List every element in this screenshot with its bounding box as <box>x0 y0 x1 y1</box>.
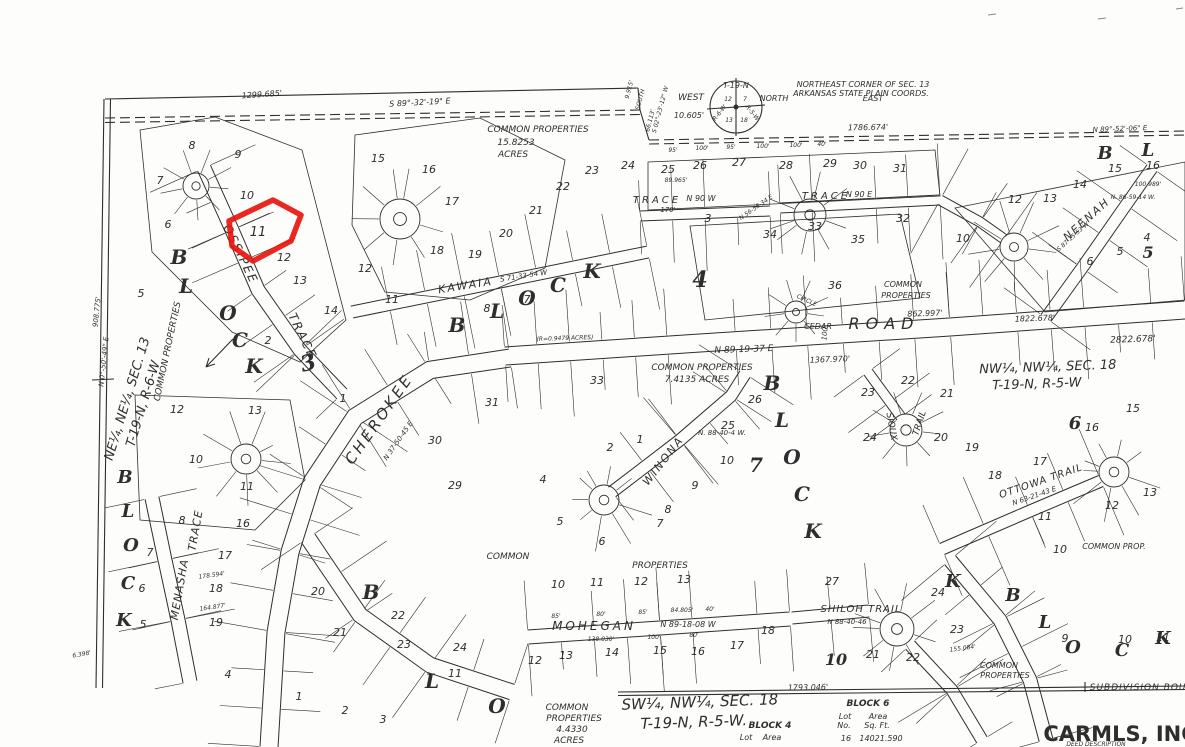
map-label: 17 <box>218 549 232 562</box>
corner-note-line2: ARKANSAS STATE PLAIN COORDS. <box>792 89 929 98</box>
map-label: 5 <box>1117 245 1124 258</box>
map-label: 6 <box>1087 255 1094 268</box>
map-label: CEDAR <box>804 322 832 331</box>
map-label: ACRES <box>497 150 528 160</box>
corner-note-line1: NORTHEAST CORNER OF SEC. 13 <box>797 80 930 89</box>
map-label: 7 <box>157 174 164 187</box>
street-mohegan: MOHEGAN <box>552 619 636 633</box>
map-label: 1 <box>296 690 303 703</box>
map-label: 13 <box>559 649 573 662</box>
map-label: 27 <box>732 156 746 169</box>
map-label: 15.8253 <box>497 138 534 148</box>
map-label: 13 <box>677 573 691 586</box>
map-label: K <box>582 259 602 283</box>
map-label: L <box>121 501 135 522</box>
map-label: 6 <box>139 582 146 595</box>
map-label: O <box>518 286 536 310</box>
map-label: 10 <box>720 454 734 467</box>
map-label: 16 <box>1085 421 1099 434</box>
map-label: 100' <box>756 143 769 150</box>
map-label: 7 <box>147 546 154 559</box>
plat-map-page: 1299.685'S 89°-32'-19" E9.915'SOUTH66.11… <box>0 0 1185 747</box>
map-label: 31 <box>485 396 499 409</box>
map-label: 15 <box>371 152 385 165</box>
map-label: 32 <box>896 212 910 225</box>
map-label: 95' <box>668 147 678 154</box>
map-label: PROPERTIES <box>546 714 602 724</box>
map-label: COMMON <box>980 661 1018 670</box>
map-label: 19 <box>468 248 482 261</box>
street-road: ROAD <box>849 314 920 333</box>
map-label: 21 <box>529 204 543 217</box>
map-label: 24 <box>621 159 635 172</box>
block-10-number: 10 <box>825 650 847 669</box>
map-label: N 90 W <box>686 194 716 203</box>
map-label: 12 <box>277 251 291 264</box>
map-label: 5 <box>557 515 564 528</box>
map-label: L <box>178 274 193 298</box>
map-label: 10 <box>189 453 203 466</box>
map-label: 18 <box>209 582 223 595</box>
map-label: PROPERTIES <box>980 671 1030 680</box>
block-6-number: 6 <box>1069 413 1082 434</box>
map-label: C <box>550 273 566 297</box>
map-label: Sq. Ft. <box>864 721 890 730</box>
map-label: 10 <box>956 232 970 245</box>
map-label: 7 <box>743 96 747 103</box>
map-label: 12 <box>1008 193 1022 206</box>
map-label: 10 <box>1118 633 1132 646</box>
map-label: L <box>489 299 504 323</box>
map-label: 18 <box>740 117 748 124</box>
map-label: 4 <box>225 668 232 681</box>
map-label: K <box>803 519 823 543</box>
map-label: 80' <box>596 611 606 618</box>
map-label: 16 <box>422 163 436 176</box>
map-label: 85' <box>551 613 561 620</box>
map-label: B <box>763 371 781 395</box>
map-label: 95' <box>726 144 736 151</box>
map-label: 9 <box>1062 632 1069 645</box>
map-label: 10 <box>1053 543 1067 556</box>
map-label: 21 <box>333 626 347 639</box>
map-label: B <box>116 467 132 488</box>
map-label: 30 <box>853 159 867 172</box>
map-label: 100' <box>695 145 708 152</box>
map-label: 9 <box>235 148 242 161</box>
map-label: 18 <box>988 469 1002 482</box>
map-label: O <box>488 694 506 718</box>
map-label: Area <box>762 733 782 742</box>
map-label: 18 <box>761 624 775 637</box>
map-label: COMMON <box>884 280 922 289</box>
table-block4-title: BLOCK 4 <box>749 721 792 731</box>
map-label: O <box>219 301 237 325</box>
map-label: 11 <box>240 480 254 493</box>
block-7-number: 7 <box>749 453 763 477</box>
map-label: 19 <box>209 616 223 629</box>
map-label: L <box>424 669 439 693</box>
map-label: L <box>774 408 789 432</box>
map-label: B <box>170 245 188 269</box>
map-label: 12 <box>724 96 732 103</box>
map-label: 21 <box>940 387 954 400</box>
map-label: 20 <box>934 431 948 444</box>
map-label: 14021.590 <box>859 734 902 743</box>
map-label: 138.030' <box>588 636 615 643</box>
street-trace-n90w: TRACE <box>633 195 681 206</box>
subdivision-boundary-label: SUBDIVISION BOUN <box>1090 683 1185 693</box>
map-label: O <box>123 535 139 556</box>
map-label: 1786.674' <box>848 123 889 133</box>
map-label: 16 <box>236 517 250 530</box>
map-label: 22 <box>391 609 405 622</box>
map-label: O <box>783 445 801 469</box>
street-trace-n90e: TRACE <box>802 191 850 202</box>
map-label: 27 <box>825 575 839 588</box>
map-label: 12 <box>1105 499 1119 512</box>
map-label: 17 <box>730 639 744 652</box>
map-label: 10.605' <box>674 111 704 120</box>
map-label: 100.989' <box>1135 181 1162 188</box>
block-4-number: 4 <box>692 267 707 293</box>
map-label: N 90 E <box>846 190 873 199</box>
map-label: 13 <box>293 274 307 287</box>
map-label: 4.4330 <box>556 725 588 735</box>
map-label: 40' <box>705 606 715 613</box>
map-label: 28 <box>779 159 793 172</box>
map-label: Area <box>868 712 888 721</box>
map-label: PROPERTIES <box>632 561 688 571</box>
map-label: 1822.678' <box>1015 313 1056 323</box>
map-label: 17 <box>1033 455 1047 468</box>
map-label: N 88-40-46 <box>827 618 867 626</box>
map-label: N 89-19-37 E <box>714 344 774 356</box>
map-label: 10 <box>240 189 254 202</box>
map-label: 13 <box>725 117 733 124</box>
map-label: K <box>944 571 962 592</box>
map-label: 12 <box>634 575 648 588</box>
map-label: 29 <box>823 157 837 170</box>
map-label: 13 <box>1143 486 1157 499</box>
map-label: 26 <box>693 159 707 172</box>
map-label: No. <box>837 721 850 730</box>
map-label: 15 <box>653 644 667 657</box>
map-label: 2 <box>607 441 614 454</box>
map-label: 2822.678' <box>1110 334 1156 346</box>
highlighted-lot-number: 11 <box>250 225 267 240</box>
map-label: 11 <box>385 293 399 306</box>
map-label: N. 86-59-14 W. <box>1111 194 1156 201</box>
map-label: 11 <box>1038 510 1052 523</box>
map-label: NORTH <box>760 94 789 103</box>
map-label: C <box>121 573 136 594</box>
map-label: 22 <box>556 180 570 193</box>
map-label: 25 <box>661 163 675 176</box>
map-label: 26 <box>748 393 762 406</box>
map-label: 16 <box>841 734 851 743</box>
map-label: 12 <box>170 403 184 416</box>
map-label: 33 <box>808 220 822 233</box>
plat-map: 1299.685'S 89°-32'-19" E9.915'SOUTH66.11… <box>0 0 1185 747</box>
label-township-t19n: T-19-N <box>723 81 749 90</box>
map-label: N. 88-40-4 W. <box>698 429 746 437</box>
map-label: 24 <box>453 641 467 654</box>
map-label: 21 <box>866 648 880 661</box>
map-label: 11 <box>590 576 604 589</box>
map-label: 7 <box>657 517 664 530</box>
map-label: 6 <box>165 218 172 231</box>
map-label: B <box>362 580 380 604</box>
map-label: 31 <box>893 162 907 175</box>
map-label: EAST <box>863 94 885 103</box>
map-label: 9 <box>692 479 699 492</box>
map-label: 35 <box>851 233 865 246</box>
map-label: 7.4135 ACRES <box>665 375 730 385</box>
map-label: COMMON PROP. <box>1082 542 1145 551</box>
map-label: 3 <box>705 212 712 225</box>
map-label: 20 <box>499 227 513 240</box>
map-label: 11 <box>1156 631 1170 644</box>
map-label: 100' <box>789 142 802 149</box>
map-label: 23 <box>397 638 411 651</box>
map-label: C <box>794 482 810 506</box>
map-label: Lot <box>839 712 852 721</box>
map-label: 3 <box>380 713 387 726</box>
map-label: 33 <box>590 374 604 387</box>
map-label: 170' <box>660 206 675 214</box>
map-label: 1 <box>637 433 644 446</box>
map-label: 22 <box>906 651 920 664</box>
map-label: B <box>1004 585 1020 606</box>
map-label: 14 <box>324 304 338 317</box>
map-label: 8 <box>179 514 186 527</box>
map-label: C <box>232 328 248 352</box>
map-label: 40' <box>817 141 827 148</box>
map-label: 20 <box>311 585 325 598</box>
map-label: 4 <box>540 473 547 486</box>
map-label: 12 <box>358 262 372 275</box>
map-label: T-19-N, R-5-W. <box>640 711 747 733</box>
common-properties-4acres: COMMON <box>546 703 589 713</box>
map-label: 100' <box>647 634 660 641</box>
map-label: K <box>115 610 133 631</box>
map-label: Lot <box>740 733 753 742</box>
map-label: 24 <box>931 586 945 599</box>
map-label: T-19-N, R-5-W <box>992 375 1083 393</box>
map-label: DEED DESCRIPTION <box>1066 741 1126 747</box>
map-label: 89.965' <box>665 177 688 184</box>
map-label: 23 <box>585 164 599 177</box>
map-label: L <box>1038 612 1052 633</box>
map-label: 17 <box>445 195 459 208</box>
common-properties-7acres: COMMON PROPERTIES <box>651 363 753 373</box>
map-label: 10 <box>551 578 565 591</box>
table-block6-title: BLOCK 6 <box>847 699 890 709</box>
map-label: 19 <box>965 441 979 454</box>
map-label: 34 <box>763 228 777 241</box>
map-label: 5 <box>138 287 145 300</box>
map-label: 85' <box>638 609 648 616</box>
map-label: 12 <box>528 654 542 667</box>
map-label: B <box>1096 143 1112 164</box>
block-5-number: 5 <box>1142 243 1153 262</box>
map-label: 8 <box>665 503 672 516</box>
map-label: 80' <box>689 632 699 639</box>
map-label: 36 <box>828 279 842 292</box>
map-label: 14 <box>1073 178 1087 191</box>
map-label: 2 <box>265 334 272 347</box>
map-label: 15 <box>1126 402 1140 415</box>
map-label: 1793.046' <box>788 683 829 693</box>
map-label: 11 <box>448 667 462 680</box>
map-label: 23 <box>950 623 964 636</box>
map-label: 8 <box>189 139 196 152</box>
map-label: 2 <box>342 704 349 717</box>
map-label: 24 <box>863 431 877 444</box>
map-label: 23 <box>861 386 875 399</box>
map-label: 1 <box>340 392 347 405</box>
map-label: B <box>448 313 466 337</box>
common-properties-15acres: COMMON PROPERTIES <box>487 125 589 135</box>
label-west: WEST <box>678 93 705 103</box>
map-label: 30 <box>428 434 442 447</box>
street-shiloh: SHILOH TRAIL <box>820 604 901 615</box>
map-label: 14 <box>605 646 619 659</box>
map-label: 29 <box>448 479 462 492</box>
map-label: 22 <box>901 374 915 387</box>
map-label: N 89-18-08 W <box>660 620 716 629</box>
map-label: 13 <box>248 404 262 417</box>
map-label: ACRES <box>553 736 584 746</box>
map-label: 1367.970' <box>810 354 851 364</box>
map-label: 6 <box>599 535 606 548</box>
map-label: 5 <box>140 618 147 631</box>
map-label: K <box>244 354 264 378</box>
map-label: PROPERTIES <box>881 291 931 300</box>
map-label: L <box>1141 140 1155 161</box>
map-label: COMMON <box>487 552 530 562</box>
map-label: 13 <box>1043 192 1057 205</box>
map-label: 16 <box>691 645 705 658</box>
map-label: 18 <box>430 244 444 257</box>
map-label: 84.805' <box>671 607 694 614</box>
